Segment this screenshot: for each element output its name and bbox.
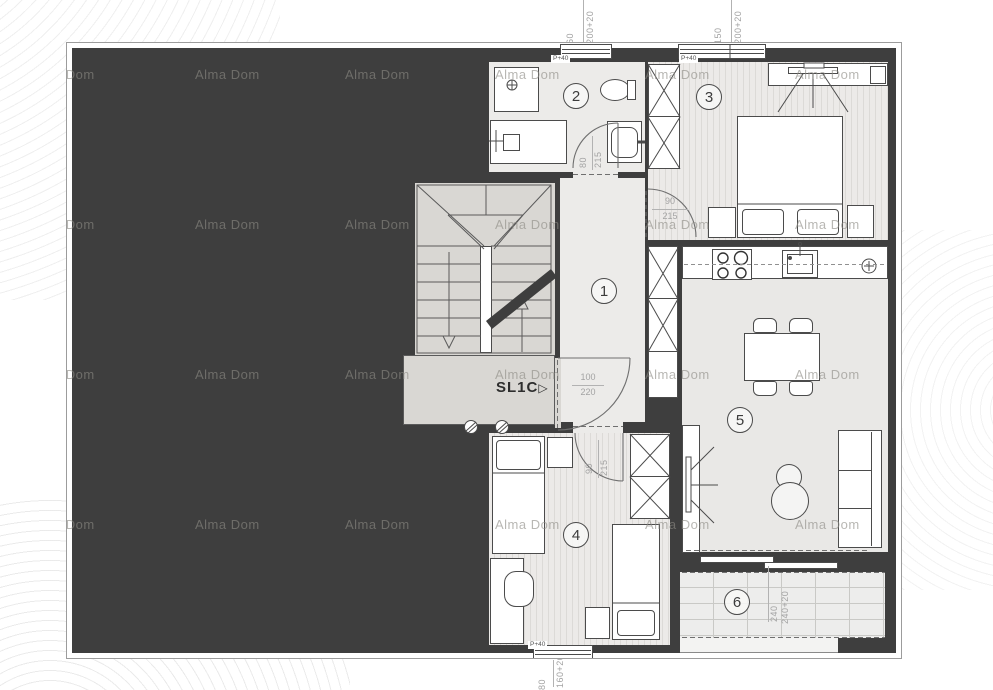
room-number: 4 xyxy=(572,527,580,544)
room-badge-6: 6 xyxy=(724,589,750,615)
bed-pillow-right xyxy=(797,209,839,235)
dining-chair-1 xyxy=(753,318,777,333)
apartment-label: SL1C▷ xyxy=(496,379,549,396)
parapet-label-bath: P+40 xyxy=(551,55,570,63)
wardrobe-bed4-cell-1 xyxy=(630,434,670,477)
room-badge-1: 1 xyxy=(591,278,617,304)
bed4-door-opening xyxy=(573,422,623,433)
parapet-label-bed3: P+40 xyxy=(679,55,698,63)
entry-door-opening xyxy=(555,358,561,428)
dining-chair-2 xyxy=(789,318,813,333)
dim-leader-bath-window xyxy=(583,0,584,44)
apartment-code: SL1C xyxy=(496,379,538,396)
hall-shaft-open xyxy=(648,351,678,398)
bed2-pillow xyxy=(617,610,655,636)
dining-chair-3 xyxy=(753,381,777,396)
bath-door-width: 80 xyxy=(579,140,588,168)
washbasin-bowl xyxy=(611,127,638,158)
bed4-door-width: 90 xyxy=(585,444,594,474)
dim-window-bed4-height: 160+20 xyxy=(556,658,565,688)
dim-window-bed3-height: 200+20 xyxy=(734,0,743,44)
balcony-sliding-door-panel-2 xyxy=(764,562,838,569)
nightstand-bed1 xyxy=(547,437,573,468)
room-number: 6 xyxy=(733,594,741,611)
dining-table xyxy=(744,333,820,381)
entry-door-height: 220 xyxy=(570,388,606,397)
toilet-bowl xyxy=(600,79,630,101)
dining-chair-4 xyxy=(789,381,813,396)
dim-window-bed3-width: 150 xyxy=(714,4,723,44)
bed4-door-height: 215 xyxy=(600,440,609,476)
direction-arrow-icon: ▷ xyxy=(538,381,548,395)
vanity-counter xyxy=(490,120,567,164)
nightstand-left xyxy=(708,207,736,238)
wardrobe-bed3-cell-2 xyxy=(648,116,680,169)
kitchen-sink-bowl xyxy=(787,254,813,274)
sofa xyxy=(838,430,882,548)
room-number: 5 xyxy=(736,412,744,429)
cooktop xyxy=(712,249,752,280)
hall-shaft-cell-1 xyxy=(648,246,678,299)
floor-plan-sheet: Alma Dom Alma Dom Alma Dom Alma Dom Alma… xyxy=(66,42,902,659)
room-badge-5: 5 xyxy=(727,407,753,433)
nightstand-bed2 xyxy=(585,607,610,639)
balcony-dim-b: 240+20 xyxy=(781,568,790,624)
room-number: 3 xyxy=(705,89,713,106)
hall-shaft-cell-2 xyxy=(648,298,678,352)
floor-plan-page: { "watermark": "Alma Dom", "rooms": ["1"… xyxy=(0,0,993,687)
bed3-door-height: 215 xyxy=(650,212,690,221)
room-number: 2 xyxy=(572,88,580,105)
dim-leader-bed3-window xyxy=(731,0,732,44)
shelf-box-bed3 xyxy=(870,66,886,84)
shower-tray xyxy=(494,67,539,112)
parapet-label-bed4: P+40 xyxy=(528,641,547,649)
dim-window-bed4-width: 80 xyxy=(538,664,547,690)
bath-door-height: 215 xyxy=(594,136,603,168)
tv-cabinet-living xyxy=(682,425,700,553)
bed3-door-fraction-line xyxy=(652,209,688,210)
room-badge-4: 4 xyxy=(563,522,589,548)
bed1-pillow xyxy=(496,440,541,470)
room-badge-2: 2 xyxy=(563,83,589,109)
dim-window-bath-height: 200+20 xyxy=(586,0,595,44)
bath-door-opening xyxy=(573,170,618,178)
balcony-dim-a: 240 xyxy=(770,574,779,622)
wardrobe-bed4-cell-2 xyxy=(630,476,670,519)
entry-door-width: 100 xyxy=(570,373,606,382)
bed3-door-width: 90 xyxy=(650,197,690,206)
room-number: 1 xyxy=(600,283,608,300)
dim-leader-bed4-window xyxy=(553,660,554,687)
stair-spine xyxy=(480,246,492,353)
entry-door-fraction-line xyxy=(572,385,604,386)
dim-window-bath-width: 60 xyxy=(566,4,575,44)
balcony-sliding-door-panel-1 xyxy=(700,556,774,563)
nightstand-right xyxy=(847,205,874,238)
toilet-tank xyxy=(627,80,636,100)
armchair-seat xyxy=(771,482,809,520)
vanity-basin xyxy=(503,134,520,151)
room-badge-3: 3 xyxy=(696,84,722,110)
bed-pillow-left xyxy=(742,209,784,235)
desk-chair xyxy=(504,571,534,607)
wardrobe-bed3-cell-1 xyxy=(648,64,680,117)
tv-bed3 xyxy=(788,67,838,74)
balcony-edge-strip xyxy=(680,638,838,653)
